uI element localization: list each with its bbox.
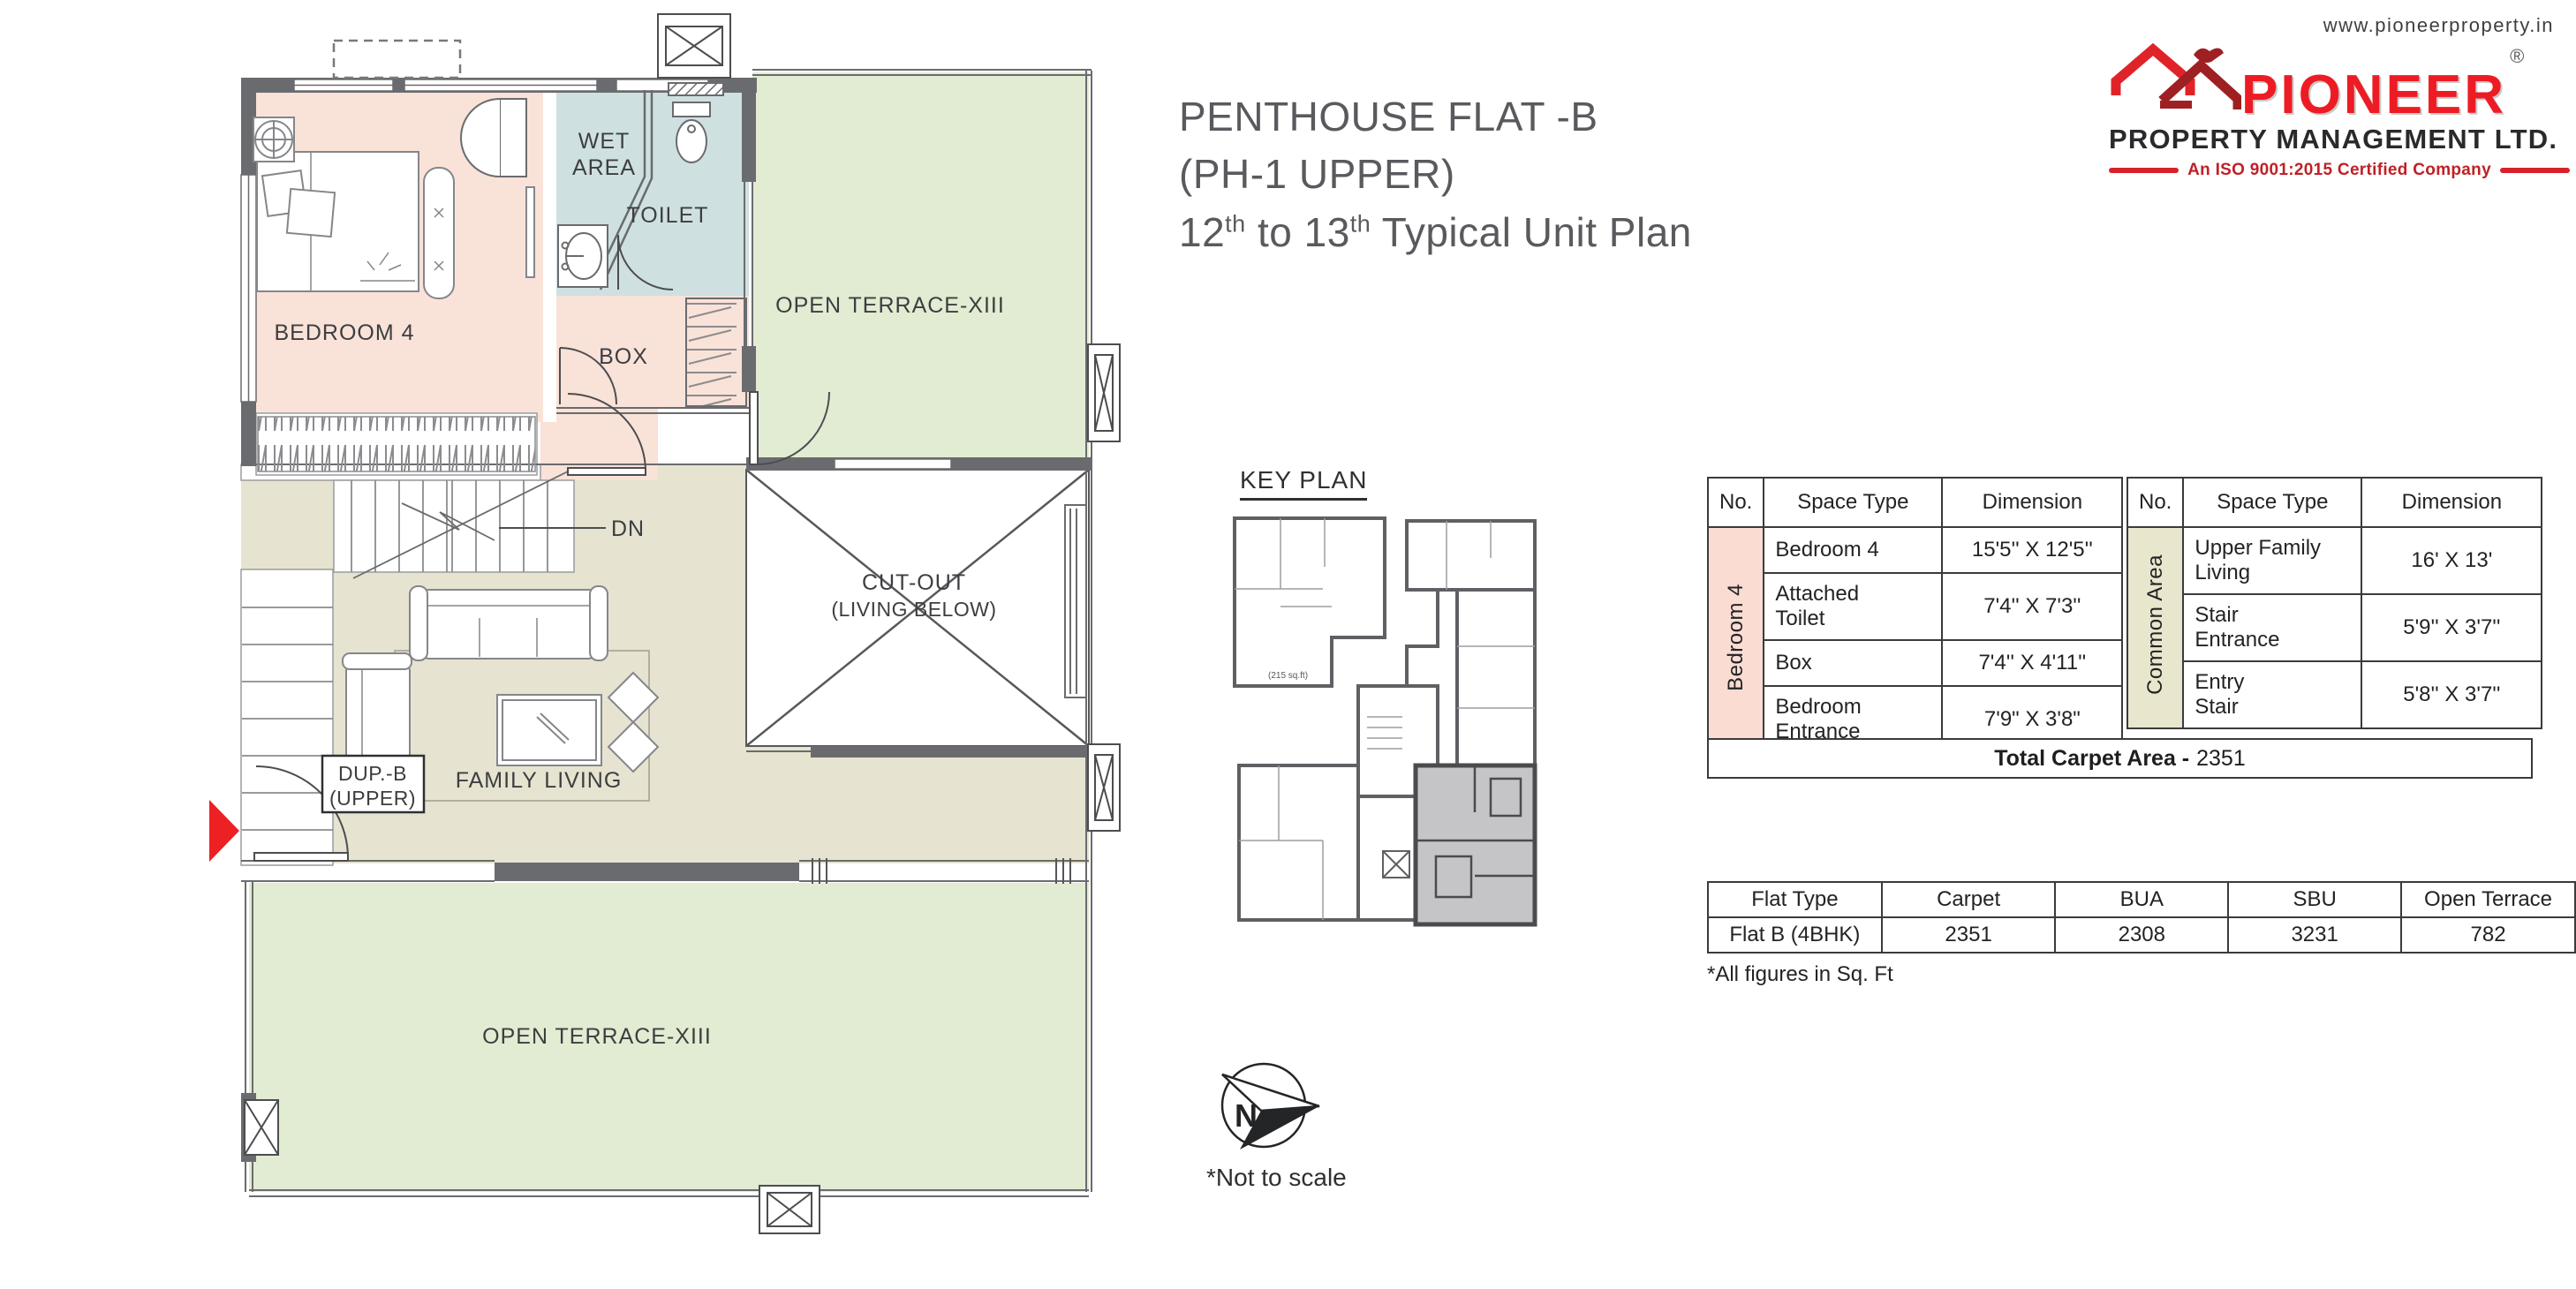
website-url: www.pioneerproperty.in [2109, 14, 2570, 37]
title-line-2: (PH-1 UPPER) [1179, 146, 1692, 203]
box-shelving [686, 298, 746, 406]
title-line-3: 12th to 13th Typical Unit Plan [1179, 204, 1692, 261]
header-dimension: Dimension [1942, 478, 2122, 527]
north-letter: N [1235, 1097, 1258, 1134]
iso-tagline: An ISO 9001:2015 Certified Company [2187, 161, 2491, 180]
header-no: No. [1708, 478, 1764, 527]
common-area-dimension-table: No. Space Type Dimension Common Area Upp… [2127, 477, 2542, 729]
key-plan-title: KEY PLAN [1240, 466, 1367, 501]
svg-text:DUP.-B: DUP.-B [338, 762, 407, 785]
total-carpet-area-bar: Total Carpet Area - 2351 [1707, 738, 2533, 779]
key-plan-highlighted-unit [1416, 765, 1535, 924]
projection-dashed-box [334, 41, 460, 78]
cutout-rail [1065, 505, 1086, 697]
header-carpet: Carpet [1882, 882, 2056, 917]
dimension-cell: 7'4'' X 7'3'' [1942, 573, 2122, 640]
table-row: Bedroom 4 Bedroom 4 15'5'' X 12'5'' [1708, 527, 2122, 573]
wardrobe [258, 417, 535, 471]
space-cell: Upper Family Living [2183, 527, 2361, 594]
total-carpet-label: Total Carpet Area - [1994, 746, 2189, 772]
page-title: PENTHOUSE FLAT -B (PH-1 UPPER) 12th to 1… [1179, 88, 1692, 261]
open-terrace-top-label: OPEN TERRACE-XIII [775, 293, 1005, 318]
toilet-label: TOILET [626, 203, 708, 228]
roof-logo-icon [2109, 37, 2241, 122]
figures-footnote: *All figures in Sq. Ft [1707, 962, 1893, 987]
not-to-scale-note: *Not to scale [1206, 1164, 1347, 1192]
space-cell: Attached Toilet [1764, 573, 1942, 640]
table-header-row: No. Space Type Dimension [2127, 478, 2542, 527]
dimension-cell: 5'8'' X 3'7'' [2361, 661, 2542, 728]
tagline-bar-left [2109, 168, 2179, 173]
dn-label: DN [611, 516, 645, 541]
company-name: PROPERTY MANAGEMENT LTD. [2109, 124, 2570, 155]
sbu-cell: 3231 [2228, 917, 2401, 953]
total-carpet-value: 2351 [2196, 746, 2246, 772]
space-cell: Bedroom 4 [1764, 527, 1942, 573]
north-compass: N [1197, 1051, 1339, 1165]
wet-area-label-2: AREA [572, 155, 636, 180]
table-row: Box 7'4'' X 4'11'' [1708, 640, 2122, 686]
carpet-cell: 2351 [1882, 917, 2056, 953]
company-logo: www.pioneerproperty.in PIONEER® PROPERTY… [2109, 14, 2570, 180]
entry-arrow [209, 800, 239, 862]
bedroom-bench [424, 168, 454, 298]
flat-type-cell: Flat B (4BHK) [1708, 917, 1882, 953]
key-plan-drawing: (215 sq.ft) [1226, 505, 1544, 929]
header-space-type: Space Type [2183, 478, 2361, 527]
svg-text:(UPPER): (UPPER) [329, 787, 416, 810]
brand-name: PIONEER [2241, 64, 2506, 125]
header-space-type: Space Type [1764, 478, 1942, 527]
bedroom4-label: BEDROOM 4 [274, 320, 414, 345]
dn-staircase [334, 480, 574, 572]
coffee-table [497, 695, 601, 765]
header-bua: BUA [2055, 882, 2228, 917]
header-dimension: Dimension [2361, 478, 2542, 527]
lower-staircase [241, 569, 333, 865]
space-cell: Stair Entrance [2183, 594, 2361, 661]
header-flat-type: Flat Type [1708, 882, 1882, 917]
wet-area-label-1: WET [578, 129, 631, 154]
table-row: Stair Entrance 5'9'' X 3'7'' [2127, 594, 2542, 661]
box-label: BOX [599, 344, 648, 369]
washbasin [558, 225, 608, 287]
dimension-cell: 5'9'' X 3'7'' [2361, 594, 2542, 661]
open-terrace-bottom-label: OPEN TERRACE-XIII [482, 1024, 712, 1049]
tagline-bar-right [2500, 168, 2570, 173]
group-label-common-area: Common Area [2127, 527, 2183, 728]
ceiling-fan-symbol [253, 117, 294, 162]
dimension-cell: 7'4'' X 4'11'' [1942, 640, 2122, 686]
space-cell: Box [1764, 640, 1942, 686]
page: { "header": { "title_line1": "PENTHOUSE … [0, 0, 2576, 1289]
table-header-row: No. Space Type Dimension [1708, 478, 2122, 527]
floor-plan-drawing: DUP.-B (UPPER) BEDROOM 4 WET AREA TOILET… [203, 9, 1183, 1245]
table-row: Entry Stair 5'8'' X 3'7'' [2127, 661, 2542, 728]
family-living-label: FAMILY LIVING [456, 768, 623, 793]
cutout-label-2: (LIVING BELOW) [831, 598, 996, 621]
registered-mark: ® [2510, 45, 2524, 67]
title-line-1: PENTHOUSE FLAT -B [1179, 88, 1692, 146]
space-cell: Entry Stair [2183, 661, 2361, 728]
table-row: Flat B (4BHK) 2351 2308 3231 782 [1708, 917, 2575, 953]
header-sbu: SBU [2228, 882, 2401, 917]
bed [257, 152, 419, 291]
group-label-bedroom4: Bedroom 4 [1708, 527, 1764, 753]
sofa-three-seater [410, 586, 608, 660]
flat-summary-table: Flat Type Carpet BUA SBU Open Terrace Fl… [1707, 881, 2576, 954]
cutout-label-1: CUT-OUT [862, 570, 966, 595]
bua-cell: 2308 [2055, 917, 2228, 953]
table-row: Common Area Upper Family Living 16' X 13… [2127, 527, 2542, 594]
table-row: Attached Toilet 7'4'' X 7'3'' [1708, 573, 2122, 640]
header-no: No. [2127, 478, 2183, 527]
dresser [526, 187, 534, 277]
header-open-terrace: Open Terrace [2401, 882, 2575, 917]
open-terrace-top-area [752, 72, 1089, 461]
dup-b-upper-tag: DUP.-B (UPPER) [322, 756, 424, 812]
open-terrace-cell: 782 [2401, 917, 2575, 953]
dimension-cell: 16' X 13' [2361, 527, 2542, 594]
table-header-row: Flat Type Carpet BUA SBU Open Terrace [1708, 882, 2575, 917]
key-plan-area-note: (215 sq.ft) [1268, 671, 1308, 681]
bedroom4-dimension-table: No. Space Type Dimension Bedroom 4 Bedro… [1707, 477, 2123, 754]
dimension-cell: 15'5'' X 12'5'' [1942, 527, 2122, 573]
